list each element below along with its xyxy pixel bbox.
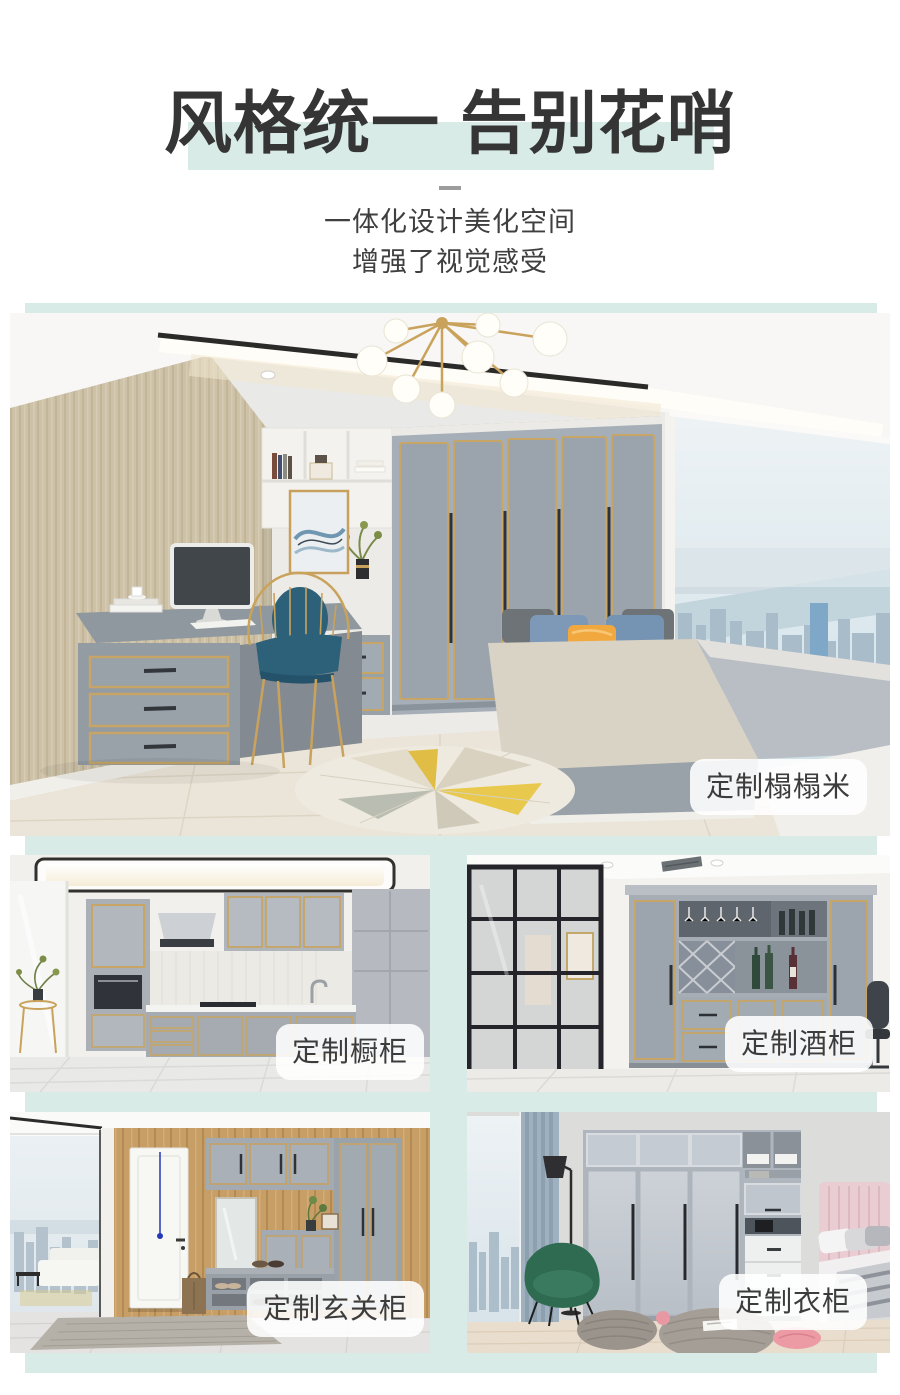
caption-kitchen: 定制橱柜 [276,1024,424,1080]
glass-wall [10,881,68,1057]
white-sofa [38,1260,100,1286]
subtitle-line-1: 一体化设计美化空间 [0,202,900,242]
title-divider [439,186,461,190]
promo-page: 风格统一 告别花哨 一体化设计美化空间 增强了视觉感受 [0,0,900,1395]
photo-entryway: 定制玄关柜 [10,1112,430,1353]
photo-kitchen: 定制橱柜 [10,855,430,1092]
entry-door [128,1148,190,1312]
photo-tatami-room: 定制榻榻米 [10,313,890,836]
paper-bag [182,1273,206,1314]
caption-tatami: 定制榻榻米 [690,759,867,815]
caption-wardrobe: 定制衣柜 [719,1274,867,1330]
page-title: 风格统一 告别花哨 [0,90,900,158]
bedroom-window [467,1112,521,1322]
tatami-room-scene [10,313,890,836]
caption-entryway: 定制玄关柜 [247,1281,424,1337]
window-view [10,1130,100,1317]
subtitle-line-2: 增强了视觉感受 [0,242,900,282]
cooktop [200,1002,256,1007]
photo-wardrobe: 定制衣柜 [467,1112,890,1353]
header: 风格统一 告别花哨 一体化设计美化空间 增强了视觉感受 [0,0,900,303]
title-highlight: 风格统一 告别花哨 [160,90,740,158]
entry-rug [30,1315,282,1350]
range-hood [158,913,216,939]
glass-partition [467,867,607,1077]
wall-artwork [290,491,348,573]
gallery: 定制榻榻米 [0,303,900,1395]
caption-wine: 定制酒柜 [725,1016,873,1072]
computer-monitor [172,545,252,607]
photo-wine-cabinet: 定制酒柜 [467,855,890,1092]
